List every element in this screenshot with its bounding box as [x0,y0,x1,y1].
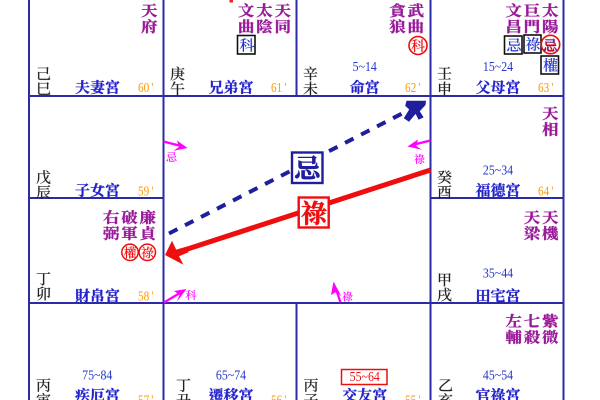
svg-text:56 ': 56 ' [271,392,286,400]
svg-text:61 ': 61 ' [271,80,286,95]
svg-text:5~14: 5~14 [353,59,378,74]
svg-text:62 ': 62 ' [405,80,420,95]
svg-text:59 ': 59 ' [138,183,153,198]
svg-text:64 ': 64 ' [538,183,553,198]
svg-text:58 ': 58 ' [138,288,153,303]
svg-text:75~84: 75~84 [82,368,113,383]
svg-text:55~64: 55~64 [350,369,381,384]
svg-text:55 ': 55 ' [405,392,420,400]
svg-text:60 ': 60 ' [138,80,153,95]
svg-text:63 ': 63 ' [538,80,553,95]
svg-text:35~44: 35~44 [483,266,514,281]
svg-text:57 ': 57 ' [138,392,153,400]
svg-text:65~74: 65~74 [216,368,247,383]
svg-text:25~34: 25~34 [483,163,514,178]
svg-text:45~54: 45~54 [483,368,514,383]
svg-text:15~24: 15~24 [483,59,514,74]
